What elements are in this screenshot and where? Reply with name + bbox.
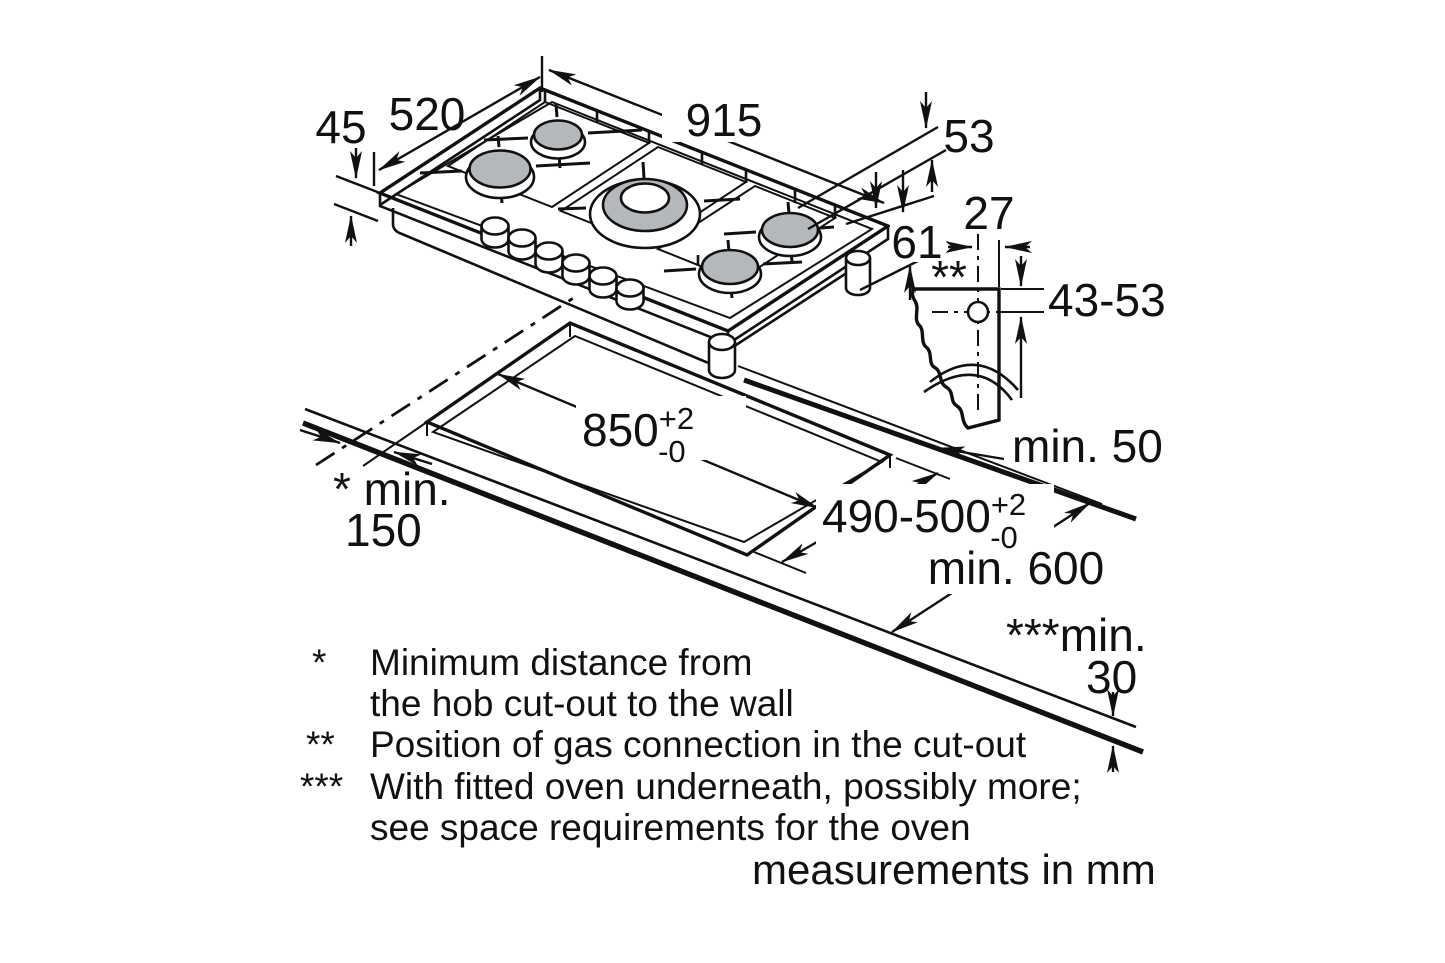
hob-installation-diagram: 45 520 915 53 61 27 ** 43-53 min. 50 850… <box>0 0 1445 963</box>
knob <box>617 280 644 310</box>
caption-units: measurements in mm <box>752 846 1156 893</box>
label-gas-connection-inset: 27 <box>963 187 1014 239</box>
label-gas-connection-depth: 43-53 <box>1048 274 1166 326</box>
cutout-back-edge-extension <box>896 458 950 479</box>
hob-foot-rear <box>846 251 870 295</box>
cutout-depth-value: 490-500 <box>822 490 991 542</box>
knob <box>509 230 536 260</box>
label-hob-rear-offset: 53 <box>943 110 994 162</box>
cutout-depth-tol-plus: +2 <box>991 487 1026 522</box>
footnotes: * Minimum distance from the hob cut-out … <box>300 642 1156 893</box>
burner-front-left <box>466 151 534 199</box>
footnote-1-line2: the hob cut-out to the wall <box>370 683 794 724</box>
label-hob-profile-height: 45 <box>315 101 366 153</box>
label-wall-clearance-value: 150 <box>345 504 422 556</box>
label-hob-width: 915 <box>686 94 763 146</box>
cutout-front-edge-extension <box>754 552 806 573</box>
burner-front-right <box>699 250 761 293</box>
cutout-width-tol-minus: -0 <box>658 434 686 469</box>
gas-connection-point <box>968 302 988 322</box>
label-worktop-depth: min. 600 <box>928 542 1104 594</box>
footnote-3-marker: *** <box>300 766 343 807</box>
footnote-1-line1: Minimum distance from <box>370 642 752 683</box>
footnote-2-line1: Position of gas connection in the cut-ou… <box>370 724 1027 765</box>
installation-diagram-page: 45 520 915 53 61 27 ** 43-53 min. 50 850… <box>0 0 1445 963</box>
footnote-3-line2: see space requirements for the oven <box>370 807 971 848</box>
knob <box>536 243 563 273</box>
knob <box>482 218 509 248</box>
burner-back-right <box>759 213 821 256</box>
hob-foot-front <box>709 334 735 378</box>
footnote-2-marker: ** <box>306 724 335 765</box>
label-gas-connection-marker: ** <box>931 251 967 303</box>
label-hob-depth: 520 <box>389 88 466 140</box>
knob <box>563 255 590 285</box>
cutout-width-value: 850 <box>582 404 659 456</box>
knob <box>590 268 617 298</box>
label-oven-clearance-value: 30 <box>1086 651 1137 703</box>
burner-center-wok <box>590 179 700 248</box>
burner-back-left <box>531 121 585 159</box>
footnote-3-line1: With fitted oven underneath, possibly mo… <box>370 766 1082 807</box>
footnote-1-marker: * <box>312 642 326 683</box>
cutout-width-tol-plus: +2 <box>659 401 694 436</box>
label-cutout-to-rear-edge: min. 50 <box>1012 420 1163 472</box>
wall-dashed-line <box>316 295 578 465</box>
